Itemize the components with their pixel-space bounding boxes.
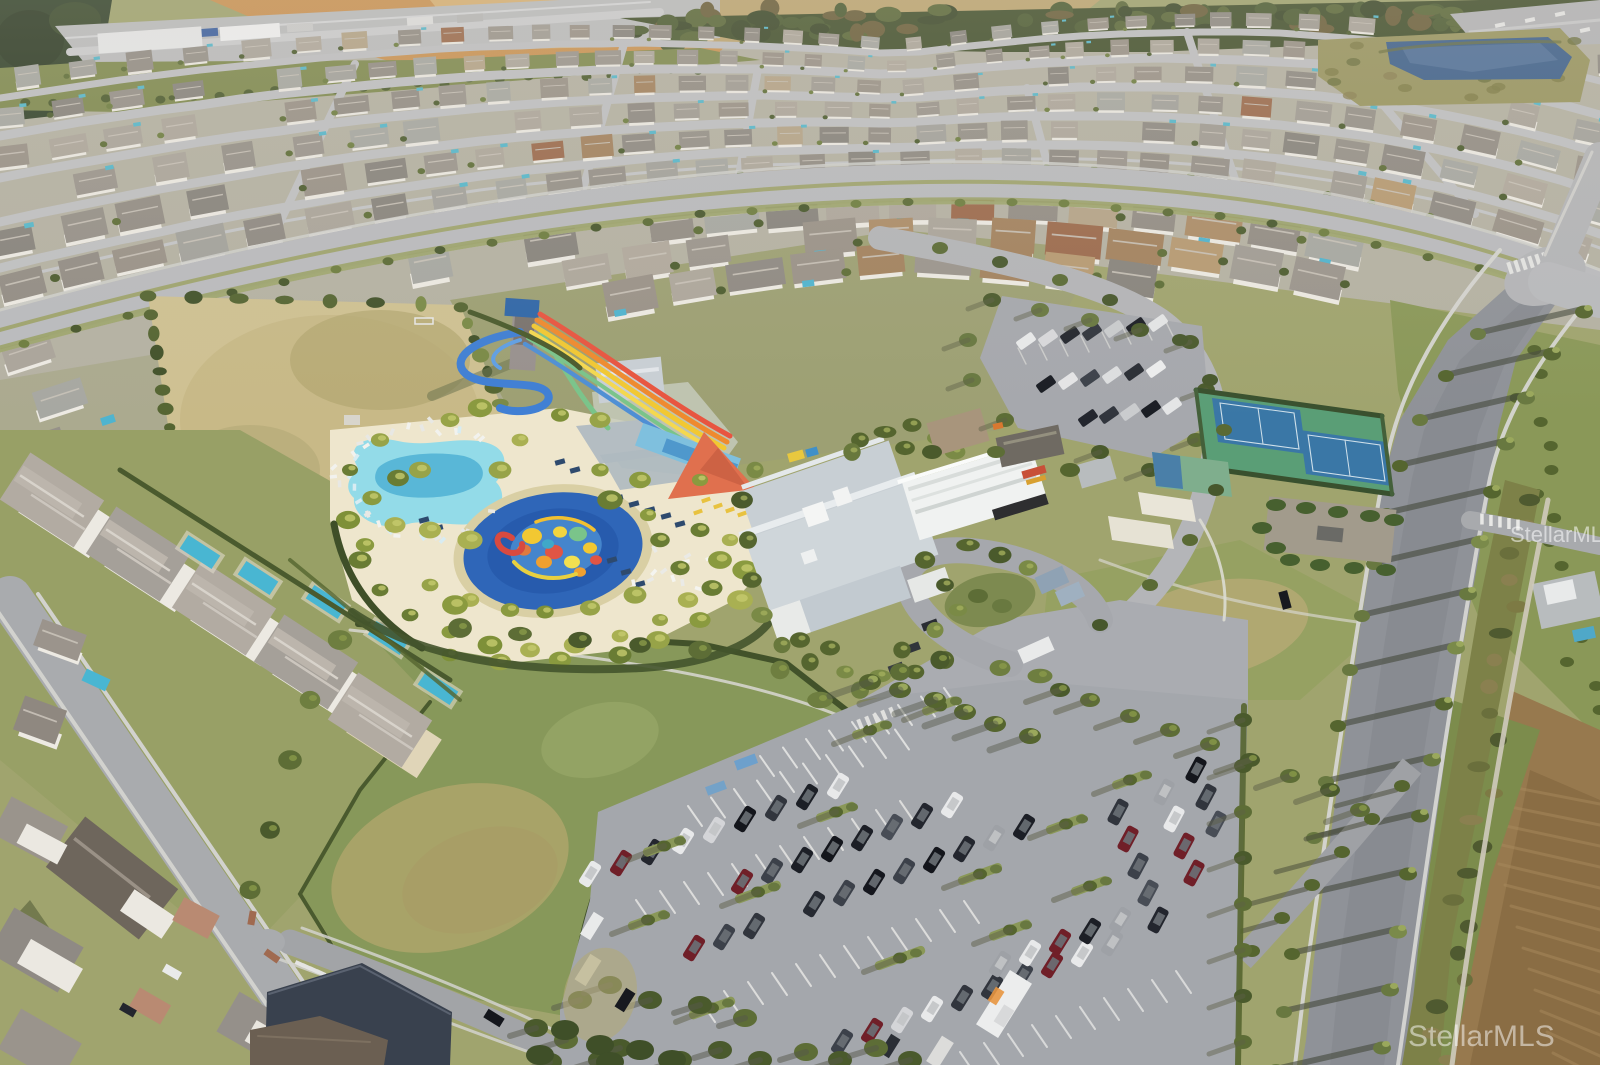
svg-text:StellarMLS: StellarMLS bbox=[1510, 522, 1600, 547]
svg-text:StellarMLS: StellarMLS bbox=[1408, 1020, 1555, 1053]
